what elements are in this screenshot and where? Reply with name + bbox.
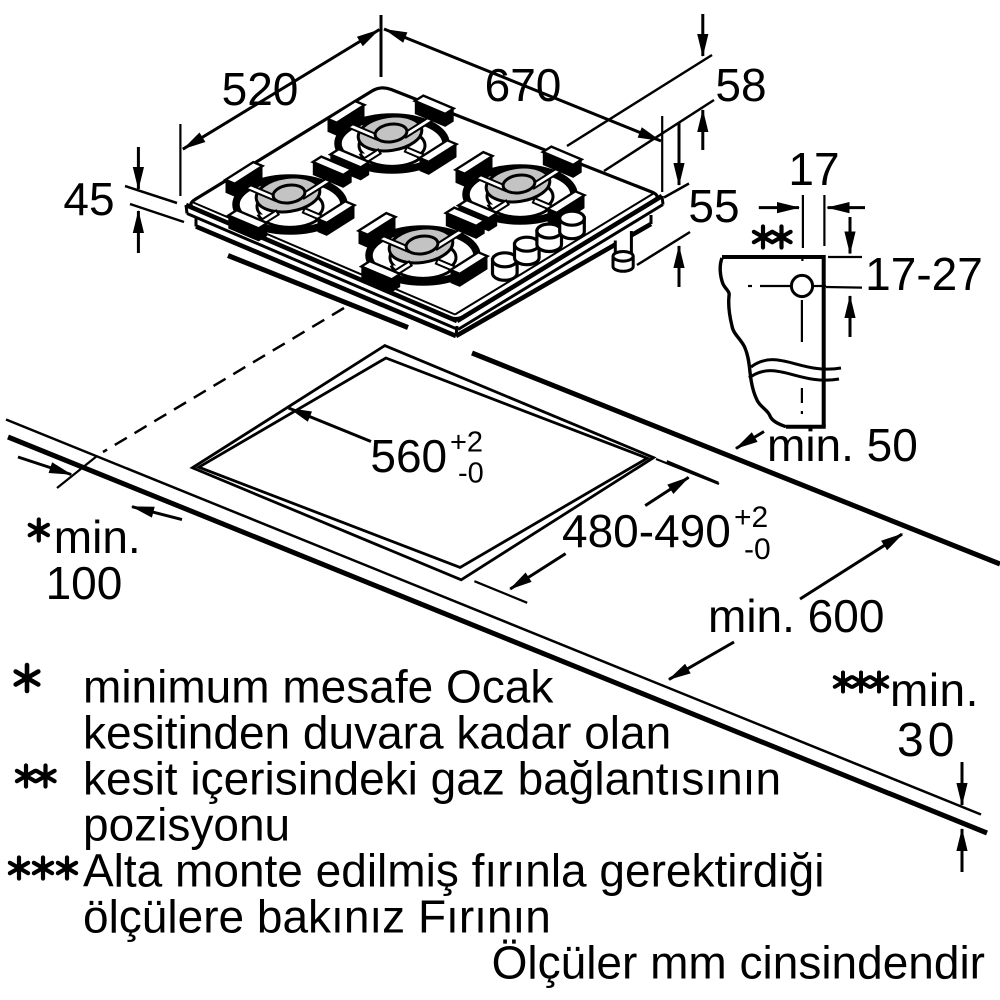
svg-text:pozisyonu: pozisyonu xyxy=(83,799,290,851)
svg-text:min. 50: min. 50 xyxy=(767,419,918,471)
svg-text:min. 600: min. 600 xyxy=(708,590,884,642)
svg-text:100: 100 xyxy=(46,557,123,609)
svg-text:+2: +2 xyxy=(734,501,768,534)
svg-text:kesit içerisindeki gaz bağlant: kesit içerisindeki gaz bağlantısının xyxy=(83,753,781,805)
svg-text:30: 30 xyxy=(897,714,958,767)
svg-text:+2: +2 xyxy=(450,427,483,459)
svg-text:Ölçüler mm cinsindendir: Ölçüler mm cinsindendir xyxy=(492,937,985,989)
svg-text:55: 55 xyxy=(688,180,739,232)
svg-text:min.: min. xyxy=(54,511,141,563)
svg-text:-0: -0 xyxy=(458,458,484,490)
svg-text:minimum mesafe Ocak: minimum mesafe Ocak xyxy=(83,661,554,713)
svg-text:560: 560 xyxy=(370,430,447,482)
svg-text:17-27: 17-27 xyxy=(865,248,983,300)
svg-text:670: 670 xyxy=(485,59,562,111)
svg-text:58: 58 xyxy=(715,59,766,111)
svg-text:kesitinden duvara kadar olan: kesitinden duvara kadar olan xyxy=(83,707,671,759)
svg-text:17: 17 xyxy=(788,143,839,195)
svg-text:Alta monte edilmiş fırınla ger: Alta monte edilmiş fırınla gerektirdiği xyxy=(83,845,824,897)
svg-text:-0: -0 xyxy=(744,533,771,566)
svg-text:45: 45 xyxy=(63,173,114,225)
svg-text:520: 520 xyxy=(222,63,299,115)
svg-text:480-490: 480-490 xyxy=(562,505,731,557)
svg-text:min.: min. xyxy=(890,664,979,716)
svg-text:ölçülere bakınız Fırının: ölçülere bakınız Fırının xyxy=(83,891,551,943)
